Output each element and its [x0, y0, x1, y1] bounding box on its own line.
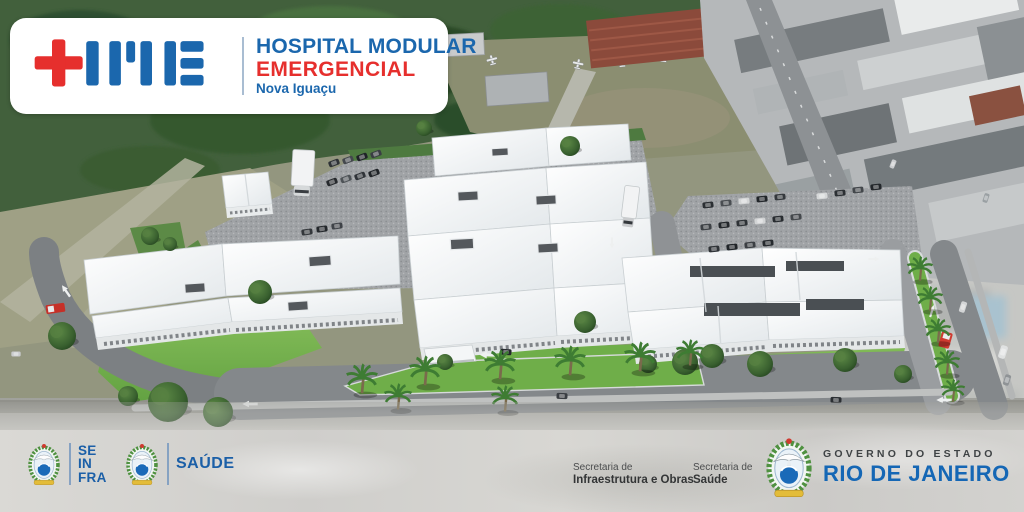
governo-logo: GOVERNO DO ESTADO RIO DE JANEIRO	[763, 436, 1010, 498]
rio-coat-of-arms-icon	[124, 442, 160, 486]
fade-strip	[0, 402, 1024, 432]
hospital-building-east	[622, 248, 905, 364]
hospital-location: Nova Iguaçu	[256, 82, 477, 96]
saude-logo: SAÚDE	[124, 442, 235, 486]
logo-divider	[242, 37, 244, 95]
seinfra-line: IN	[78, 457, 107, 470]
hme-logo-card: HOSPITAL MODULAR EMERGENCIAL Nova Iguaçu	[10, 18, 448, 114]
governo-line2: RIO DE JANEIRO	[823, 461, 1010, 487]
governo-line1: GOVERNO DO ESTADO	[823, 448, 1010, 460]
seinfra-logo: SE IN FRA	[26, 442, 107, 486]
divider	[69, 443, 71, 485]
hospital-name-line2: EMERGENCIAL	[256, 59, 477, 80]
secretaria-saude: Secretaria de Saúde	[693, 462, 752, 487]
hme-logo	[26, 34, 230, 98]
seinfra-line: FRA	[78, 471, 107, 484]
divider	[167, 443, 169, 485]
poster: HOSPITAL MODULAR EMERGENCIAL Nova Iguaçu…	[0, 0, 1024, 512]
secretaria-infraestrutura: Secretaria de Infraestrutura e Obras	[573, 462, 694, 487]
service-building	[222, 172, 273, 218]
hospital-name-line1: HOSPITAL MODULAR	[256, 36, 477, 57]
footer-bar: SE IN FRA SAÚDE Secretaria de Infraestru…	[0, 430, 1024, 512]
plus-icon	[35, 39, 83, 86]
hme-letters	[86, 41, 203, 85]
saude-label: SAÚDE	[176, 455, 235, 473]
hospital-building-center	[404, 124, 658, 365]
rio-coat-of-arms-icon	[26, 442, 62, 486]
rio-coat-of-arms-icon	[763, 436, 815, 498]
